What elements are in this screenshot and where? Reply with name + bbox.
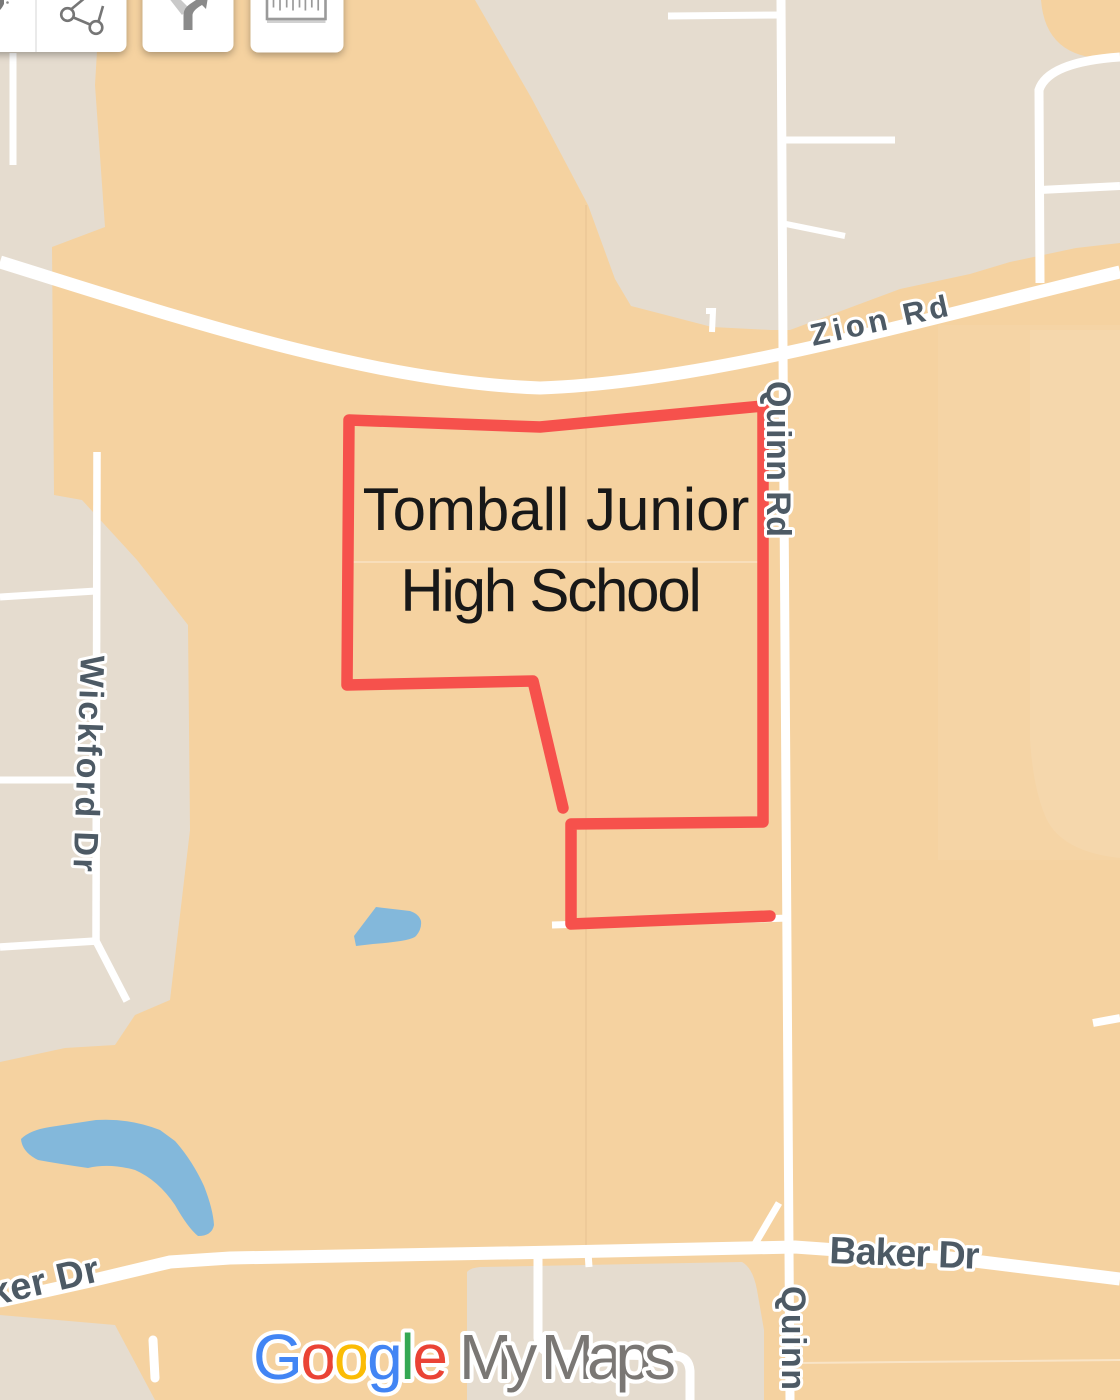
svg-text:Baker Dr: Baker Dr [829,1230,981,1278]
svg-text:Quinn Rd: Quinn Rd [759,381,797,537]
svg-text:Google: Google [253,1321,448,1393]
svg-text:My Maps: My Maps [459,1321,676,1393]
svg-text:High School: High School [400,557,699,624]
svg-text:Tomball Junior: Tomball Junior [363,476,750,543]
svg-text:Quinn: Quinn [774,1286,812,1390]
svg-text:Wickford Dr: Wickford Dr [65,655,111,875]
